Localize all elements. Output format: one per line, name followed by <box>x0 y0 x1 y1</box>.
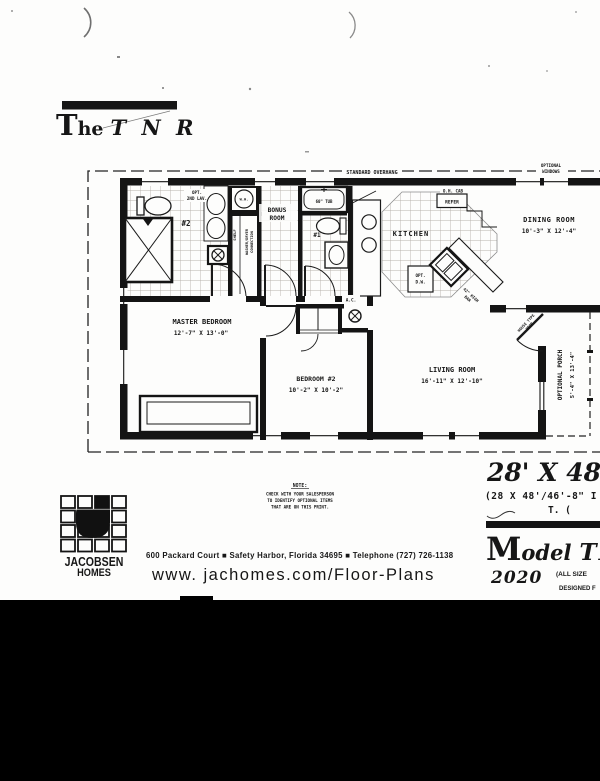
designed-note: DESIGNED F <box>559 586 596 592</box>
title-block: TheT N R <box>56 101 197 142</box>
optional-windows-label: OPTIONAL <box>541 163 562 168</box>
toilet <box>145 197 171 215</box>
bath2-number: #2 <box>181 219 190 228</box>
dining-room-dims: 10'-3" X 12'-4" <box>522 228 576 235</box>
website-url: www. jachomes.com/Floor-Plans <box>151 566 435 584</box>
note-heading: NOTE: <box>293 483 307 489</box>
bonus-room-label: BONUS <box>268 207 287 214</box>
bedroom2-label: BEDROOM #2 <box>296 375 335 383</box>
porch-outline <box>546 312 590 436</box>
dining-room-label: DINING ROOM <box>523 216 575 224</box>
dishwasher-label2: D.W. <box>415 280 425 285</box>
living-room-dims: 16'-11" X 12'-10" <box>421 378 482 385</box>
washer-dryer-label2: CONNECTION <box>250 231 254 253</box>
overhead-cabinet-label: O.H. CAB <box>443 189 464 194</box>
master-bedroom-dims: 12'-7" X 13'-0" <box>174 330 228 337</box>
model-rest: odel <box>521 540 571 565</box>
bottom-scan-bar <box>0 596 600 781</box>
size-heading: 28' X 48'/4 <box>486 458 600 487</box>
opt-2nd-lav-label2: 2ND LAV. <box>187 196 207 201</box>
lavatory-sink <box>207 218 225 239</box>
dishwasher-label: OPT. <box>415 273 425 278</box>
scanned-floorplan-page: TheT N R <box>0 0 600 781</box>
size-detail: (28 X 48'/46'-8" I <box>485 491 597 502</box>
optional-porch-dims: 5'-4" X 13'-4" <box>570 352 576 398</box>
bonus-room-label2: ROOM <box>270 215 285 222</box>
optional-windows-label2: WINDOWS <box>542 169 560 174</box>
kitchen-counter <box>353 200 381 296</box>
note-line: THAT ARE ON THIS PRINT. <box>271 505 329 510</box>
bedroom2-dims: 10'-2" X 10'-2" <box>289 387 343 394</box>
model-initial: M <box>486 530 521 568</box>
title-he: he <box>78 118 104 140</box>
footer: 600 Packard Court ■ Safety Harbor, Flori… <box>146 551 454 584</box>
floor-plan: STANDARD OVERHANG OPTIONAL WINDOWS OPT. … <box>88 161 600 452</box>
optional-porch-label: OPTIONAL PORCH <box>557 349 564 400</box>
opt-2nd-lav-label: OPT. <box>192 190 202 195</box>
kitchen-label: KITCHEN <box>393 230 430 238</box>
refrigerator-label: REFER <box>445 200 459 206</box>
note-line: TO IDENTIFY OPTIONAL ITEMS <box>267 498 333 503</box>
model-series: TN <box>579 539 600 566</box>
living-room-label: LIVING ROOM <box>429 366 475 374</box>
floorplan-canvas: TheT N R <box>0 0 600 781</box>
logo-sub: HOMES <box>77 567 111 579</box>
logo-j-bowl <box>76 510 110 539</box>
model-year: 2020 <box>490 568 542 588</box>
note-block: NOTE: CHECK WITH YOUR SALESPERSON TO IDE… <box>266 483 335 510</box>
jacobsen-logo: JACOBSEN HOMES <box>61 496 126 579</box>
water-heater-label: W.H. <box>240 198 249 202</box>
title-initial: T <box>56 108 78 142</box>
title-model-name: T N R <box>111 115 198 140</box>
washer-dryer-label: WASHER/DRYER <box>245 228 249 255</box>
model-divider-bar <box>486 521 600 528</box>
ac-label: A.C. <box>346 298 357 304</box>
model-info: 28' X 48'/4 (28 X 48'/46'-8" I T. ( Mode… <box>485 458 600 592</box>
overhang-label: STANDARD OVERHANG <box>346 170 397 176</box>
all-sizes-note: (ALL SIZE <box>556 571 588 578</box>
note-line: CHECK WITH YOUR SALESPERSON <box>266 492 335 497</box>
bath1-number: #1 <box>313 232 321 239</box>
address-line: 600 Packard Court ■ Safety Harbor, Flori… <box>146 551 454 560</box>
tub-label: 60" TUB <box>316 199 333 204</box>
master-bay-window <box>140 396 257 432</box>
page-title: TheT N R <box>56 108 197 142</box>
logo-j-stem <box>95 496 109 508</box>
master-bedroom-label: MASTER BEDROOM <box>172 318 231 326</box>
shelf-label: SHELF <box>232 229 237 241</box>
toilet-tank <box>137 197 144 215</box>
title-bar <box>62 101 177 110</box>
lavatory-sink <box>207 194 225 215</box>
model-name: ModelTN <box>486 530 600 568</box>
size-detail2: T. ( <box>548 505 571 516</box>
